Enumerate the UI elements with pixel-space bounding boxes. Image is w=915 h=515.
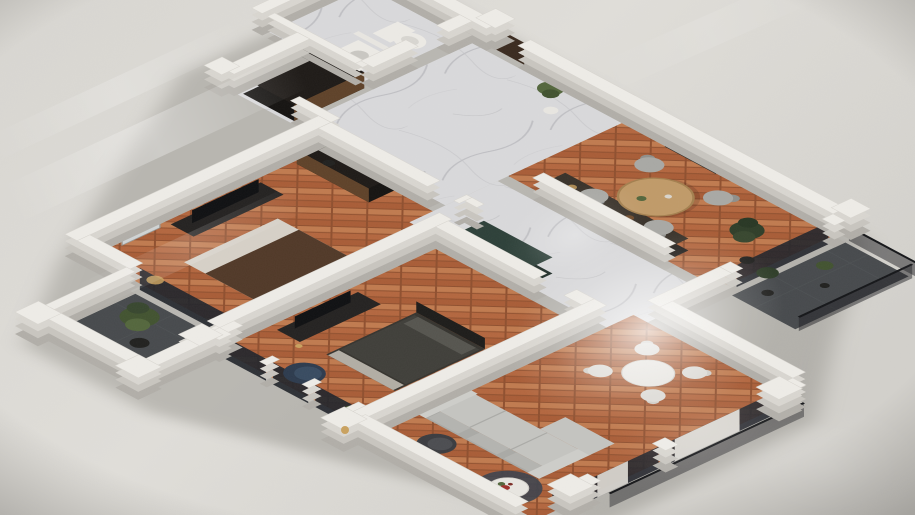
floor-plan-photo — [0, 0, 915, 515]
photo-grain — [0, 0, 915, 515]
